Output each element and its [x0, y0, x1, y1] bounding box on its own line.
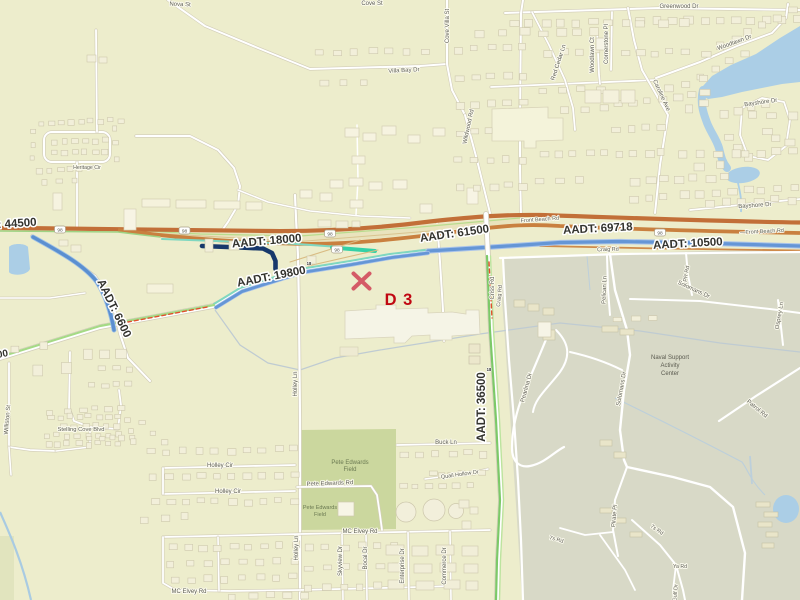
svg-text:Pete Edwards: Pete Edwards: [331, 460, 368, 466]
svg-text:Center: Center: [661, 371, 679, 377]
svg-text:Stelling Cove Blvd: Stelling Cove Blvd: [57, 427, 104, 433]
svg-text:Commerce Dr: Commerce Dr: [442, 547, 448, 584]
svg-text:Enterprise Dr: Enterprise Dr: [400, 548, 406, 583]
svg-text:Naval Support: Naval Support: [651, 355, 689, 361]
svg-text:Bocal Dr: Bocal Dr: [363, 546, 369, 569]
svg-text:Buck Ln: Buck Ln: [435, 440, 457, 446]
svg-text:18: 18: [487, 367, 492, 372]
svg-text:Pete Edwards: Pete Edwards: [303, 505, 337, 511]
svg-text:MC Elvey Rd: MC Elvey Rd: [342, 529, 377, 535]
svg-text:Holley Ln: Holley Ln: [294, 535, 300, 560]
svg-text:Ya Rd: Ya Rd: [673, 564, 687, 570]
svg-text:Woodlawn Ct: Woodlawn Ct: [590, 37, 596, 73]
svg-text:18: 18: [307, 261, 312, 266]
svg-text:98: 98: [334, 248, 340, 254]
svg-text:Criss Rd: Criss Rd: [490, 276, 496, 299]
svg-text:Activity: Activity: [660, 363, 679, 369]
svg-text:MC Elvey Rd: MC Elvey Rd: [171, 589, 206, 595]
svg-text:Cove St: Cove St: [361, 1, 383, 7]
svg-text:Skyview Dr: Skyview Dr: [338, 546, 344, 576]
svg-text:Pelican Ln: Pelican Ln: [602, 276, 609, 304]
svg-text:Nova St: Nova St: [169, 2, 191, 9]
svg-text:98: 98: [182, 229, 188, 235]
svg-text:Holley Cir: Holley Cir: [215, 489, 241, 495]
svg-text:Greenwood Dr: Greenwood Dr: [659, 4, 698, 10]
svg-text:Holley Ln: Holley Ln: [293, 371, 299, 396]
svg-text:Cornerstone Pl: Cornerstone Pl: [604, 24, 610, 64]
svg-text:Cove Villa St: Cove Villa St: [445, 9, 451, 44]
svg-text:98: 98: [327, 232, 333, 238]
svg-text:AADT: 36500: AADT: 36500: [476, 372, 488, 442]
svg-text:Field: Field: [314, 512, 326, 518]
svg-text:Holley Cir: Holley Cir: [207, 463, 233, 469]
svg-text:Heritage Cir: Heritage Cir: [73, 165, 101, 171]
svg-text:Field: Field: [343, 467, 356, 473]
svg-text:98: 98: [657, 231, 663, 237]
svg-text:Craig Rd: Craig Rd: [597, 247, 619, 254]
svg-text:98: 98: [57, 228, 63, 234]
svg-text:D 3: D 3: [385, 291, 414, 309]
